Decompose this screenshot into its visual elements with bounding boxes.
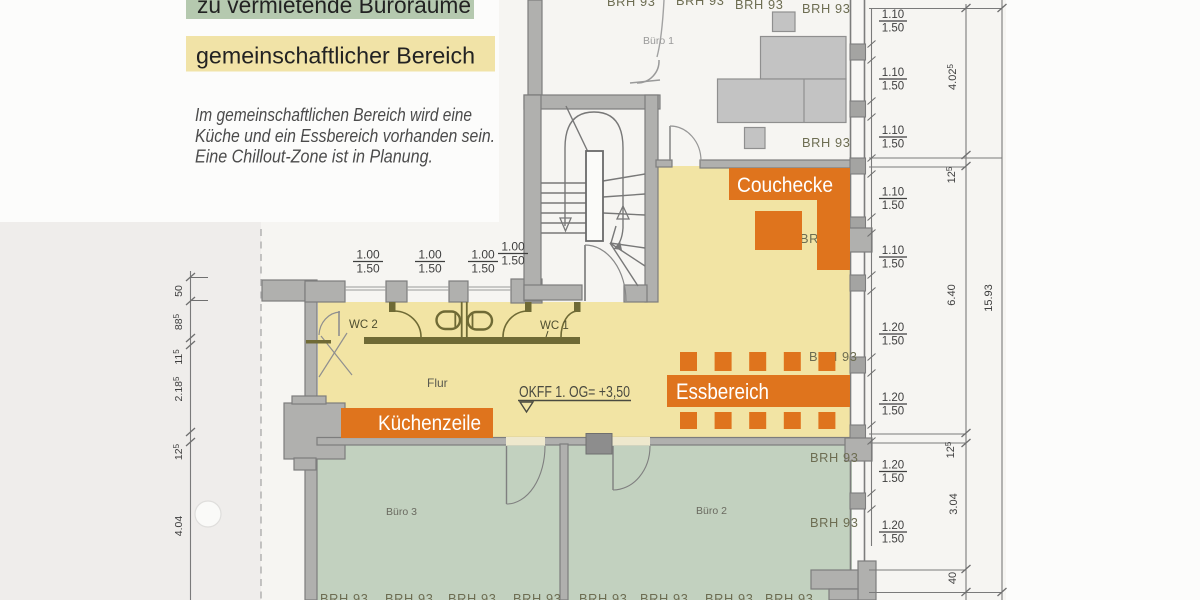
svg-text:gemeinschaftlicher Bereich: gemeinschaftlicher Bereich (196, 43, 475, 69)
svg-text:Im gemeinschaftlichen Bereich: Im gemeinschaftlichen Bereich wird eine (195, 104, 472, 125)
svg-text:BRH 93: BRH 93 (640, 591, 688, 600)
svg-text:Essbereich: Essbereich (676, 379, 769, 404)
svg-text:BRH 93: BRH 93 (802, 135, 850, 150)
svg-text:1.50: 1.50 (882, 81, 904, 93)
svg-text:1.00: 1.00 (418, 248, 442, 262)
svg-text:1.10: 1.10 (882, 245, 904, 257)
svg-text:Couchecke: Couchecke (737, 173, 833, 197)
svg-text:1.50: 1.50 (418, 262, 442, 276)
svg-text:1.50: 1.50 (882, 406, 904, 418)
svg-text:BRH 93: BRH 93 (579, 591, 627, 600)
svg-text:3.04: 3.04 (948, 493, 960, 514)
svg-text:1.00: 1.00 (501, 240, 525, 254)
svg-text:1.50: 1.50 (882, 200, 904, 212)
svg-text:Flur: Flur (427, 376, 448, 390)
svg-text:BRH 93: BRH 93 (735, 0, 783, 12)
svg-text:Büro 3: Büro 3 (386, 506, 417, 518)
svg-text:BRH 93: BRH 93 (810, 515, 858, 530)
svg-text:1.50: 1.50 (882, 336, 904, 348)
svg-text:BRH 93: BRH 93 (802, 1, 850, 16)
svg-text:1.10: 1.10 (882, 67, 904, 79)
svg-text:zu vermietende Büroräume: zu vermietende Büroräume (197, 0, 471, 18)
svg-text:BRH 93: BRH 93 (765, 591, 813, 600)
svg-text:1.50: 1.50 (882, 139, 904, 151)
svg-text:BRH 93: BRH 93 (385, 591, 433, 600)
svg-text:Büro 1: Büro 1 (643, 35, 674, 47)
svg-text:1.10: 1.10 (882, 187, 904, 199)
svg-text:Küchenzeile: Küchenzeile (378, 412, 481, 435)
svg-text:Eine Chillout-Zone ist in Plan: Eine Chillout-Zone ist in Planung. (195, 146, 433, 167)
svg-text:BRH 93: BRH 93 (320, 591, 368, 600)
svg-text:1.20: 1.20 (882, 392, 904, 404)
svg-text:15.93: 15.93 (983, 284, 995, 312)
svg-text:WC 1: WC 1 (540, 320, 569, 332)
svg-text:1.10: 1.10 (882, 125, 904, 137)
svg-text:BRH 93: BRH 93 (448, 591, 496, 600)
svg-text:1.20: 1.20 (882, 460, 904, 472)
svg-text:1.50: 1.50 (882, 534, 904, 546)
svg-text:Büro 2: Büro 2 (696, 505, 727, 517)
svg-text:1.50: 1.50 (471, 262, 495, 276)
svg-text:1.50: 1.50 (882, 23, 904, 35)
svg-text:BRH 93: BRH 93 (810, 450, 858, 465)
svg-text:BRH 93: BRH 93 (607, 0, 655, 9)
svg-text:WC 2: WC 2 (349, 319, 378, 331)
svg-text:BRH 93: BRH 93 (513, 591, 561, 600)
svg-text:1.00: 1.00 (471, 248, 495, 262)
svg-text:1.50: 1.50 (882, 259, 904, 271)
svg-text:BRH 93: BRH 93 (676, 0, 724, 8)
svg-text:40: 40 (947, 572, 959, 584)
svg-text:1.20: 1.20 (882, 322, 904, 334)
svg-text:1.50: 1.50 (356, 262, 380, 276)
svg-text:4.04: 4.04 (173, 516, 185, 537)
svg-text:BRH 93: BRH 93 (705, 591, 753, 600)
svg-text:1.00: 1.00 (356, 248, 380, 262)
svg-text:1.10: 1.10 (882, 9, 904, 21)
svg-text:1.50: 1.50 (501, 254, 525, 268)
svg-text:50: 50 (173, 285, 185, 297)
svg-text:1.20: 1.20 (882, 520, 904, 532)
svg-text:OKFF 1. OG= +3,50: OKFF 1. OG= +3,50 (519, 384, 630, 401)
svg-text:Küche und ein Essbereich vorha: Küche und ein Essbereich vorhanden sein. (195, 125, 495, 146)
svg-text:1.50: 1.50 (882, 473, 904, 485)
svg-text:6.40: 6.40 (946, 284, 958, 305)
